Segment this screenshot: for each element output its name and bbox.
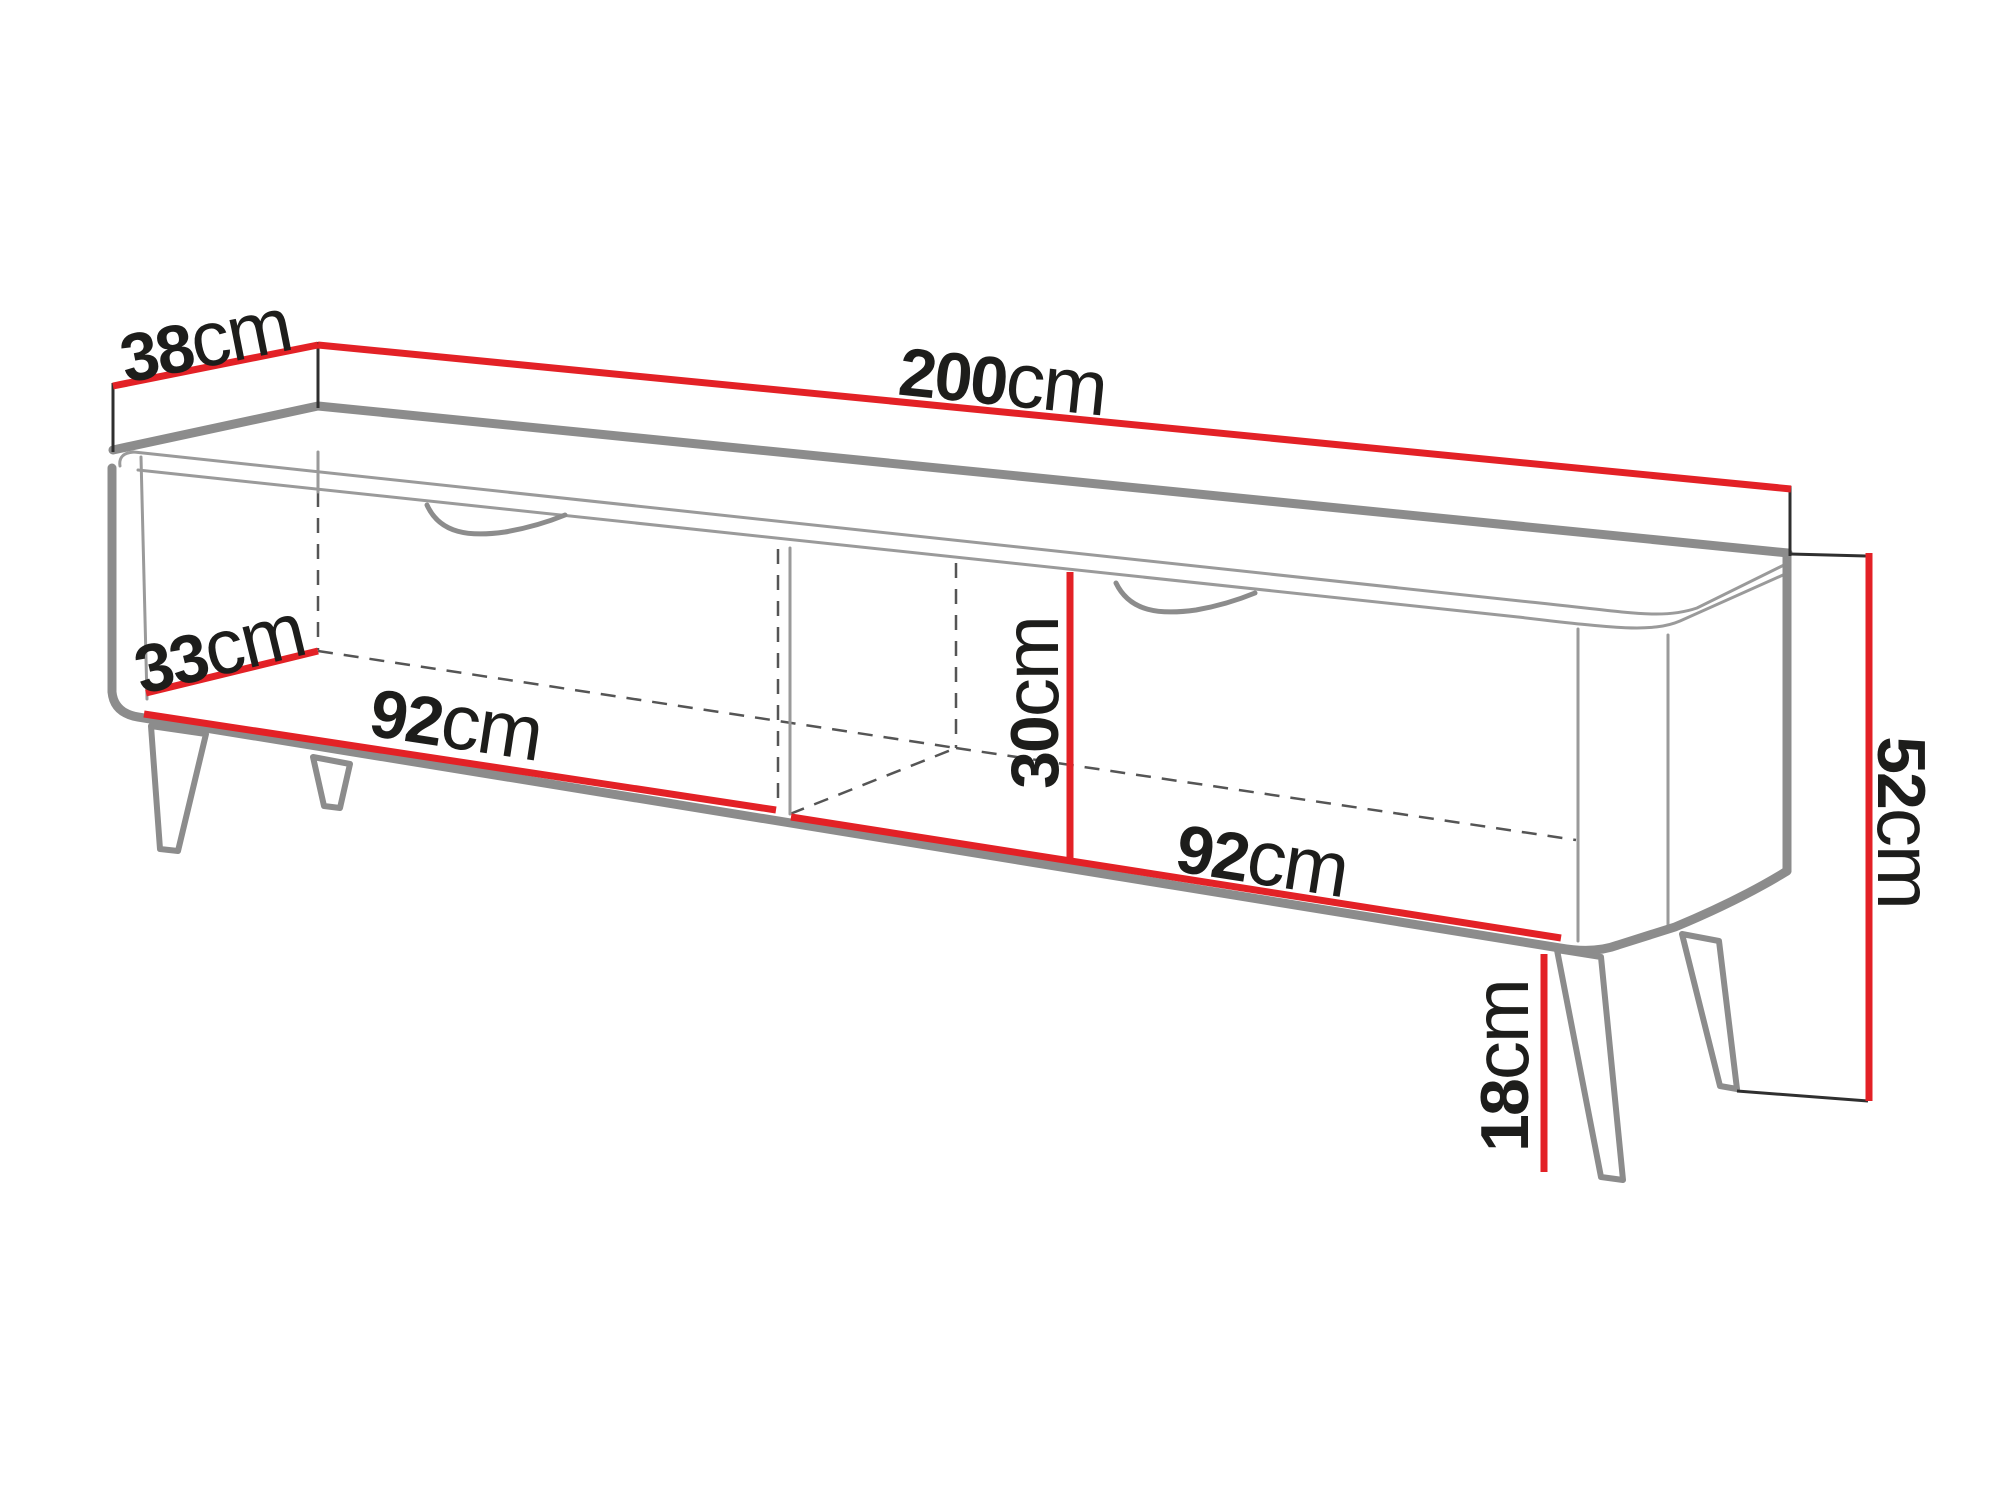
label-height-52: 52cm xyxy=(1861,736,1949,908)
leg-back-right xyxy=(1682,934,1737,1089)
partition-bottom-hidden-edge xyxy=(790,748,956,814)
top-panel-front-edge-upper xyxy=(120,452,1786,614)
tv-stand-dimension-drawing: 38cm 200cm 33cm 92cm 30cm 92cm 52cm 18cm xyxy=(0,0,2000,1500)
hidden-interior-edges xyxy=(318,492,1576,840)
leg-back-left xyxy=(313,757,350,808)
leg-front-right xyxy=(1557,950,1623,1180)
label-width-200: 200cm xyxy=(895,324,1110,433)
label-right-niche-92: 92cm xyxy=(1171,801,1354,914)
label-niche-height-30: 30cm xyxy=(987,617,1075,789)
ext-line-height-bottom xyxy=(1737,1091,1868,1101)
label-interior-33: 33cm xyxy=(125,585,313,711)
label-depth-38: 38cm xyxy=(112,280,298,400)
label-legs-18: 18cm xyxy=(1457,980,1545,1152)
top-panel-front-edge-lower xyxy=(138,470,1783,628)
carcass-silhouette xyxy=(112,406,1788,950)
back-upstand-bottom-edge xyxy=(113,406,1788,553)
dimension-diagram-canvas: 38cm 200cm 33cm 92cm 30cm 92cm 52cm 18cm xyxy=(0,0,2000,1500)
leg-front-left xyxy=(151,726,206,851)
ext-line-height-top xyxy=(1790,554,1866,556)
